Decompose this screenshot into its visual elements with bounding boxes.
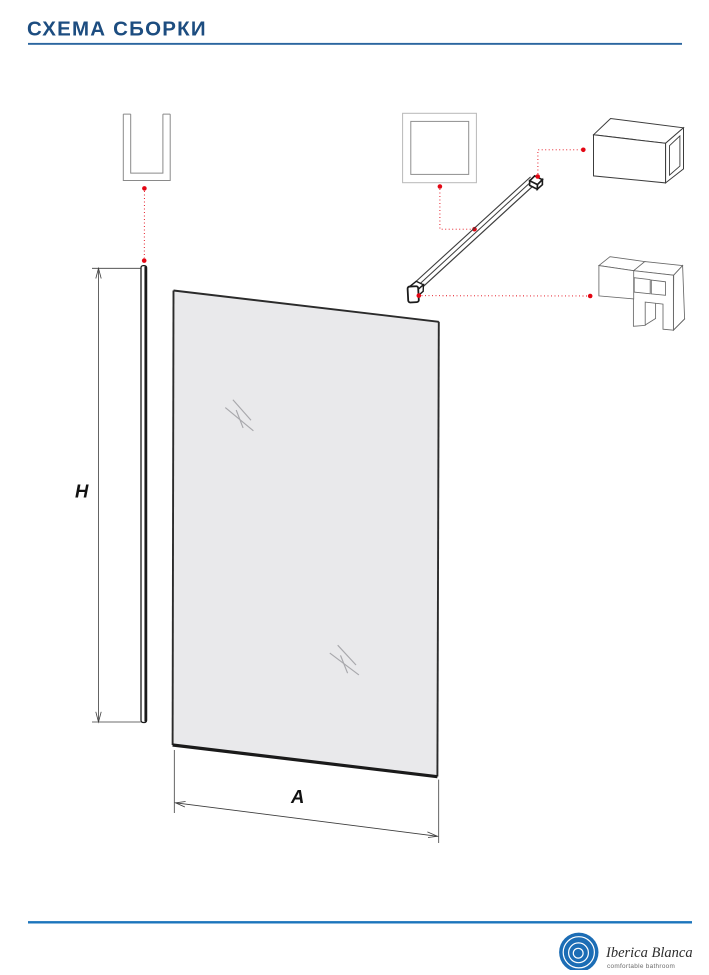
svg-text:H: H: [75, 481, 89, 502]
svg-text:comfortable bathroom: comfortable bathroom: [607, 963, 675, 970]
svg-text:Iberica Blanca: Iberica Blanca: [605, 945, 693, 961]
svg-text:СХЕМА СБОРКИ: СХЕМА СБОРКИ: [27, 18, 207, 41]
svg-text:A: A: [290, 786, 304, 807]
